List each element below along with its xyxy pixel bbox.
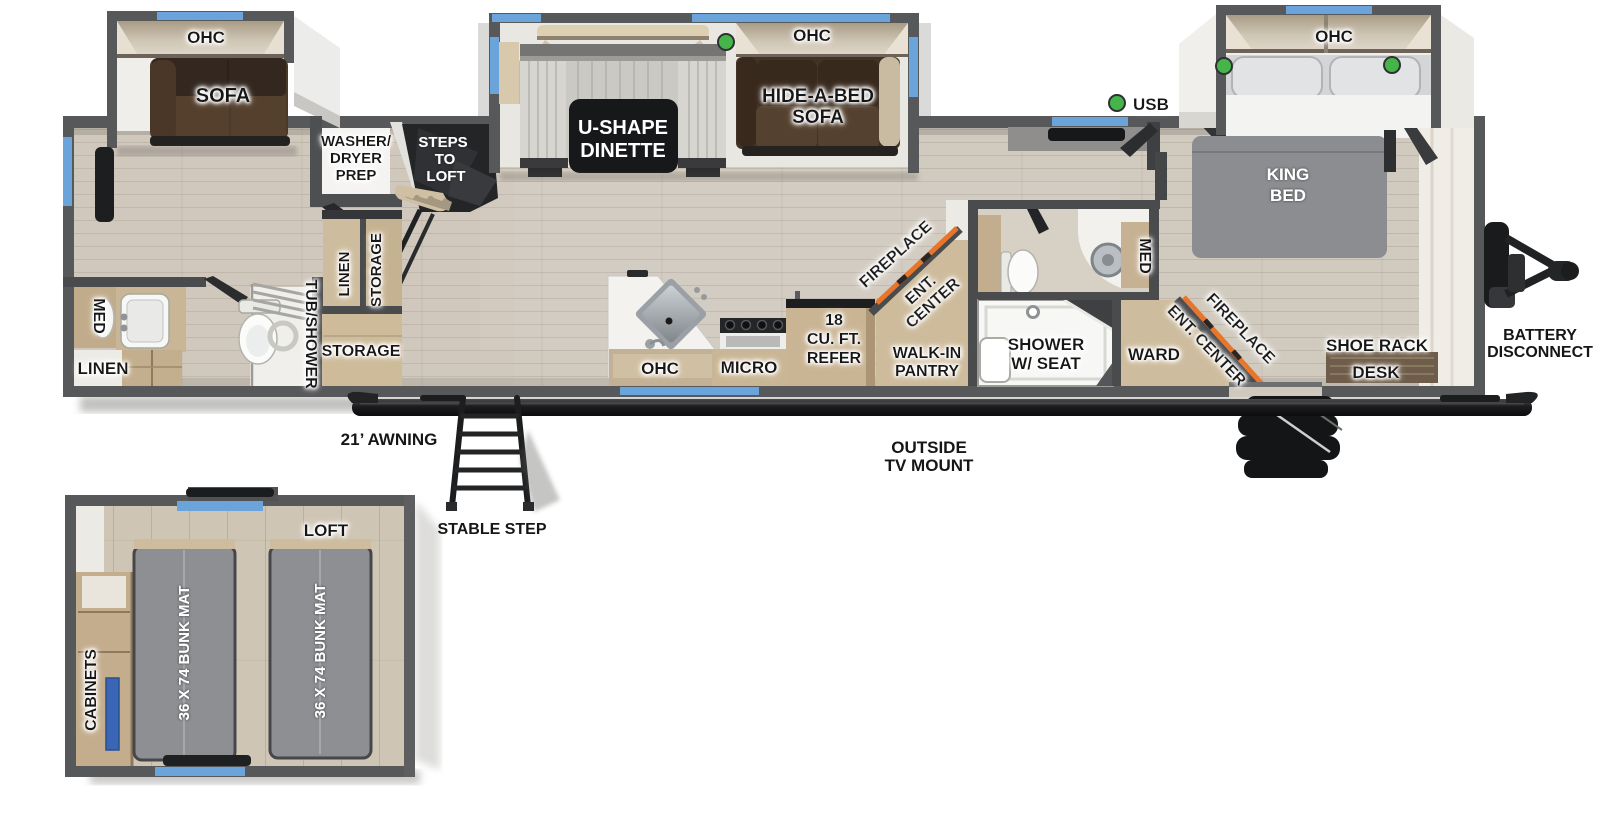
svg-text:OHC: OHC bbox=[1315, 27, 1353, 46]
svg-text:OHC: OHC bbox=[793, 26, 831, 45]
svg-text:LINEN: LINEN bbox=[336, 252, 353, 297]
svg-text:W/ SEAT: W/ SEAT bbox=[1011, 354, 1081, 373]
svg-text:SHOWER: SHOWER bbox=[1008, 335, 1085, 354]
svg-text:DINETTE: DINETTE bbox=[580, 140, 666, 162]
svg-text:SHOE RACK: SHOE RACK bbox=[1326, 336, 1429, 355]
svg-text:CABINETS: CABINETS bbox=[83, 649, 100, 731]
svg-text:OHC: OHC bbox=[187, 28, 225, 47]
svg-text:PANTRY: PANTRY bbox=[895, 363, 959, 380]
svg-text:SOFA: SOFA bbox=[792, 107, 844, 128]
svg-text:BED: BED bbox=[1270, 186, 1306, 205]
svg-text:STORAGE: STORAGE bbox=[322, 343, 401, 360]
svg-text:WASHER/: WASHER/ bbox=[321, 133, 392, 150]
svg-text:MED: MED bbox=[90, 298, 107, 334]
svg-text:KING: KING bbox=[1267, 165, 1310, 184]
svg-text:CU. FT.: CU. FT. bbox=[807, 331, 861, 348]
svg-text:U-SHAPE: U-SHAPE bbox=[578, 117, 668, 139]
svg-text:HIDE-A-BED: HIDE-A-BED bbox=[762, 86, 874, 107]
svg-text:21’ AWNING: 21’ AWNING bbox=[341, 430, 438, 449]
svg-text:36 X 74 BUNK MAT: 36 X 74 BUNK MAT bbox=[312, 584, 329, 719]
svg-text:DRYER: DRYER bbox=[330, 150, 382, 167]
svg-text:STORAGE: STORAGE bbox=[368, 233, 385, 307]
svg-text:MICRO: MICRO bbox=[721, 358, 778, 377]
svg-text:USB: USB bbox=[1133, 95, 1169, 114]
svg-text:TUB/SHOWER: TUB/SHOWER bbox=[302, 279, 319, 389]
svg-text:LOFT: LOFT bbox=[426, 168, 465, 185]
svg-text:LOFT: LOFT bbox=[304, 521, 349, 540]
svg-text:WARD: WARD bbox=[1128, 345, 1180, 364]
svg-text:DISCONNECT: DISCONNECT bbox=[1487, 344, 1593, 361]
svg-text:STEPS: STEPS bbox=[418, 134, 467, 151]
svg-text:DESK: DESK bbox=[1352, 363, 1400, 382]
svg-text:MED: MED bbox=[1136, 238, 1153, 274]
svg-text:WALK-IN: WALK-IN bbox=[893, 345, 961, 362]
svg-text:SOFA: SOFA bbox=[196, 85, 250, 107]
svg-text:BATTERY: BATTERY bbox=[1503, 327, 1577, 344]
svg-text:OUTSIDE: OUTSIDE bbox=[891, 438, 967, 457]
svg-text:TV MOUNT: TV MOUNT bbox=[885, 456, 974, 475]
svg-text:OHC: OHC bbox=[641, 359, 679, 378]
svg-text:18: 18 bbox=[825, 312, 843, 329]
svg-text:TO: TO bbox=[435, 151, 456, 168]
svg-text:PREP: PREP bbox=[336, 167, 377, 184]
svg-text:36 X 74 BUNK MAT: 36 X 74 BUNK MAT bbox=[176, 586, 193, 721]
svg-text:STABLE STEP: STABLE STEP bbox=[437, 521, 546, 538]
svg-text:REFER: REFER bbox=[807, 350, 862, 367]
svg-text:LINEN: LINEN bbox=[78, 359, 129, 378]
